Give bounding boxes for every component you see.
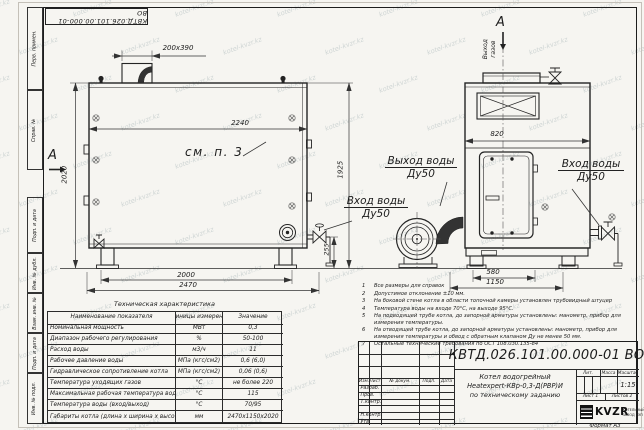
top-stamp: КВТД.026.101.00.000-01 ВО	[45, 8, 148, 25]
boiler-front-view	[84, 64, 334, 269]
section-label-left: А	[48, 149, 57, 163]
note-item: 3На боковой стене котла в области топочн…	[362, 298, 638, 305]
tb-col-podp: Подп.	[419, 379, 439, 384]
dim-duct: 200х390	[150, 45, 206, 52]
tb-sheets-label: Листов	[612, 394, 628, 399]
note-item: 1Все размеры для справок	[362, 283, 638, 290]
frame-cell-label: Инв. № подл.	[33, 382, 38, 415]
tb-org-cell: KVZR КОТЕЛЬНЫЙ ЗАВОД РЭП	[576, 400, 639, 425]
note-number: 6	[362, 327, 374, 340]
see-note-label: см. п. 3	[185, 146, 243, 159]
water-outlet-label-line2: Ду50	[385, 168, 457, 180]
tb-sheet-label: Лист	[583, 394, 594, 399]
note-text: На отводящей трубе котла, до запорной ар…	[374, 327, 638, 340]
note-number: 3	[362, 298, 374, 305]
water-inlet-left-label: Вход воды Ду50	[344, 195, 408, 220]
tech-row-unit: МПа (кгс/см2)	[176, 356, 223, 367]
tb-name-line1: Котел водогрейный	[454, 373, 576, 381]
frame-cell-podp-data-2: Подп. и дата	[27, 333, 43, 373]
tb-org-line2: ЗАВОД РЭП	[623, 413, 644, 418]
tb-name-line3: по техническому заданию	[454, 391, 576, 399]
note-number: 4	[362, 306, 374, 313]
note-text: Все размеры для справок	[374, 283, 444, 290]
drawing-sheet: kotel-kvzr.kzkotel-kvzr.kzkotel-kvzr.kzk…	[0, 0, 644, 430]
note-item: 6На отводящей трубе котла, до запорной а…	[362, 327, 638, 340]
frame-cell-label: Взам. инв. №	[33, 297, 38, 330]
tech-row-name: Температура воды (вход/выход)	[48, 400, 176, 411]
gas-outlet-label-line2: газов	[491, 32, 497, 66]
tech-row-value: 0,06 (0,6)	[223, 367, 283, 378]
water-inlet-left-label-line1: Вход воды	[344, 195, 408, 208]
tech-row-name: Расход воды	[48, 345, 176, 356]
tb-name-line2: Heatexpert-КВр-0,3-Д(РВР)И	[454, 382, 576, 390]
tb-org-name: КОТЕЛЬНЫЙ ЗАВОД РЭП	[623, 408, 644, 418]
tech-row-unit: °С	[176, 378, 223, 389]
note-text: Допустимое отклонение ±10 мм.	[374, 291, 465, 298]
section-label-top: А	[496, 16, 505, 30]
tb-row-tkontr: Т.контр.	[361, 400, 382, 405]
frame-cell-vzam-inv: Взам. инв. №	[27, 293, 43, 333]
note-text: На боковой стене котла в области топочно…	[374, 298, 612, 305]
note-item: 5На подводящей трубе котла, до запорной …	[362, 313, 638, 326]
tech-table: Техническая характеристика Наименование …	[47, 300, 282, 423]
tech-row-value: 50-100	[223, 334, 283, 345]
frame-cell-inv-dubl: Инв. № дубл.	[27, 253, 43, 293]
tech-row-value: 11	[223, 345, 283, 356]
tb-lit-label: Лит.	[576, 371, 600, 376]
water-inlet-left-label-line2: Ду50	[344, 208, 408, 220]
tech-row-value: 0,6 (6,0)	[223, 356, 283, 367]
frame-cell-sprav-no: Справ. №	[27, 90, 43, 170]
tech-row-value: 70/95	[223, 400, 283, 411]
water-inlet-right-label-line2: Ду50	[558, 171, 624, 183]
tb-row-razrab: Разраб.	[361, 386, 380, 391]
tech-row-name: Диапазон рабочего регулирования	[48, 334, 176, 345]
frame-cell-podp-data-1: Подп. и дата	[27, 197, 43, 253]
dim-front-height: 2020	[61, 155, 68, 195]
tech-row-name: Номинальная мощность	[48, 323, 176, 334]
tb-sheets: Листов 2	[605, 394, 639, 399]
frame-cell-label: Подп. и дата	[33, 209, 38, 242]
tech-row-name: Гидравлическое сопротивление котла	[48, 367, 176, 378]
frame-cell-perv-primen: Перв. примен.	[27, 7, 43, 90]
tb-scale-value: 1:15	[617, 381, 639, 389]
tech-row-name: Температура уходящих газов	[48, 378, 176, 389]
tech-row-value: 2470х1150х2020	[223, 411, 283, 422]
gas-outlet-label-line1: Выход	[483, 32, 489, 66]
kvzr-logo-icon	[580, 405, 593, 419]
dim-base-span: 2000	[166, 272, 206, 279]
tech-row-unit: %	[176, 334, 223, 345]
tb-sheets-value: 2	[630, 394, 633, 399]
dim-overall-length: 2470	[168, 282, 208, 289]
water-inlet-right-label: Вход воды Ду50	[558, 158, 624, 183]
tech-row-unit: °С	[176, 389, 223, 400]
tech-table-grid: Наименование показателя Единицы измерени…	[47, 311, 282, 423]
dim-side-base: 580	[478, 269, 508, 276]
tech-table-title: Техническая характеристика	[47, 300, 282, 311]
tb-col-doc: № докум.	[381, 379, 419, 384]
tech-row-name: Габариты котла (длина х ширина х высота)	[48, 411, 176, 422]
tech-row-unit: мм	[176, 411, 223, 422]
water-inlet-right-label-line1: Вход воды	[558, 158, 624, 171]
tech-row-unit: м3/ч	[176, 345, 223, 356]
notes-list: 1Все размеры для справок 2Допустимое отк…	[362, 283, 638, 349]
note-text: Температура воды на входе 70°С, на выход…	[374, 306, 514, 313]
tech-row-unit: °С	[176, 400, 223, 411]
dim-side-width: 820	[482, 131, 512, 138]
burner-fan	[397, 217, 464, 268]
water-outlet-label: Выход воды Ду50	[385, 155, 457, 180]
frame-cell-inv-podl: Инв. № подл.	[27, 373, 43, 424]
tb-doc-number: КВТД.026.101.00.000-01 ВО	[454, 342, 639, 369]
format-note: Формат А3	[570, 424, 640, 430]
tech-row-value: не более 220	[223, 378, 283, 389]
top-stamp-text: КВТД.026.101.00.000-01 ВО	[46, 9, 147, 25]
tech-row-value: 0,3	[223, 323, 283, 334]
frame-cell-label: Справ. №	[33, 118, 38, 141]
frame-cell-label: Инв. № дубл.	[33, 257, 38, 290]
tb-row-prov: Пров.	[361, 393, 375, 398]
section-arrows	[49, 32, 506, 173]
tb-col-list: Лист	[369, 379, 381, 384]
tb-scale-label: Масштаб	[617, 371, 639, 376]
tech-row-name: Максимальная рабочая температура воды	[48, 389, 176, 400]
tb-sheet-value: 1	[595, 394, 598, 399]
dim-pump-height: 255	[324, 234, 331, 264]
tech-row-unit: МПа (кгс/см2)	[176, 367, 223, 378]
note-number: 1	[362, 283, 374, 290]
tech-row-value: 115	[223, 389, 283, 400]
title-block: Изм. Лист № докум. Подп. Дата Разраб. Пр…	[358, 341, 638, 424]
format-label: Формат	[589, 423, 611, 429]
note-number: 2	[362, 291, 374, 298]
tech-row-name: Рабочее давление воды	[48, 356, 176, 367]
tb-row-nkontr: Н.контр.	[361, 413, 382, 418]
tech-row-unit: МВт	[176, 323, 223, 334]
tb-col-data: Дата	[439, 379, 454, 384]
frame-cell-label: Перв. примен.	[33, 30, 38, 66]
tb-mass-label: Масса	[600, 371, 617, 376]
note-text: На подводящей трубе котла, до запорной а…	[374, 313, 638, 326]
note-item: 2Допустимое отклонение ±10 мм.	[362, 291, 638, 298]
format-value: А3	[613, 423, 620, 429]
dim-front-width: 2240	[215, 120, 265, 127]
dim-body-height: 1925	[337, 150, 344, 190]
tb-row-utv: Утв.	[361, 420, 371, 425]
tb-col-izm: Изм.	[359, 379, 369, 384]
tb-sheet: Лист 1	[576, 394, 605, 399]
note-item: 4Температура воды на входе 70°С, на выхо…	[362, 306, 638, 313]
water-outlet-label-line1: Выход воды	[385, 155, 457, 168]
frame-cell-label: Подп. и дата	[33, 337, 38, 370]
note-number: 5	[362, 313, 374, 326]
